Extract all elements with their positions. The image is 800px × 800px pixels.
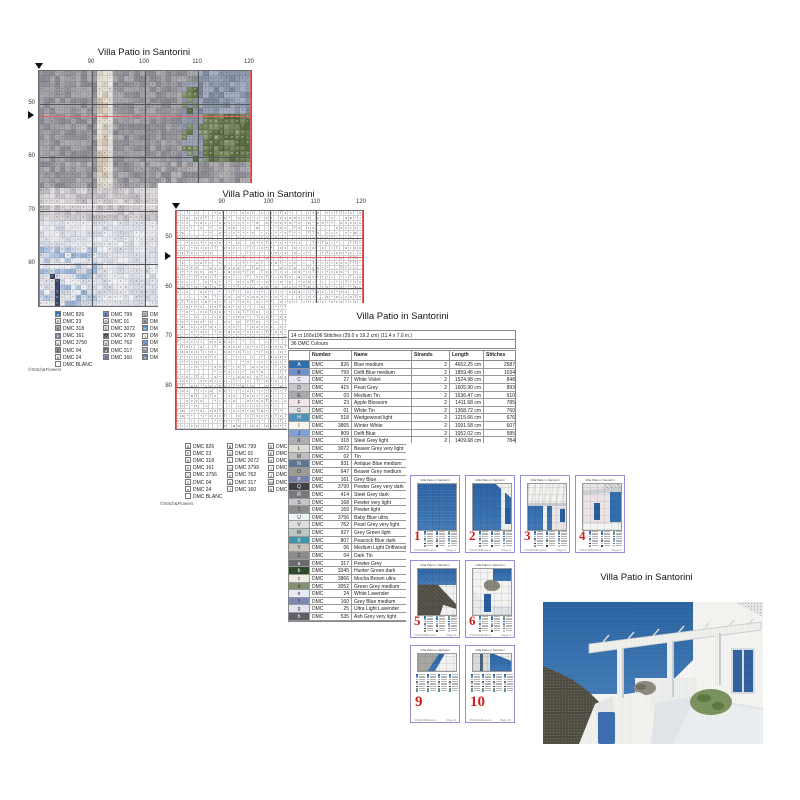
- number-cell: DMC04: [309, 552, 351, 559]
- page-number: 5: [414, 613, 421, 629]
- page-thumbnail-10[interactable]: Villa Patio in Santorini10©Stitch&Flower…: [465, 645, 515, 723]
- stitches-cell: 676: [483, 414, 517, 421]
- colour-count-box: 36 DMC Colours: [288, 339, 516, 349]
- legend-label: DMC 04: [63, 348, 81, 354]
- thumbnail-watermark: ©Stitch&Flowers: [414, 548, 436, 552]
- legend-swatch: e: [55, 354, 61, 360]
- legend-label: DMC BLANC: [63, 362, 92, 368]
- length-cell: 1411.68 cm: [449, 399, 483, 406]
- thumbnail-title: Villa Patio in Santorini: [576, 478, 624, 482]
- legend-swatch: F: [55, 318, 61, 324]
- thumbnail-watermark: ©Stitch&Flowers: [579, 548, 601, 552]
- legend-swatch: Z: [185, 479, 191, 485]
- symbol-cell: W: [289, 529, 309, 536]
- legend-label: DMC 161: [63, 333, 84, 339]
- name-cell: Steel Grey light: [351, 437, 411, 444]
- thumbnail-chart-image: [417, 568, 457, 616]
- name-cell: Grey Blue medium: [351, 598, 411, 605]
- page-thumbnail-4[interactable]: Villa Patio in Santorini4©Stitch&Flowers…: [575, 475, 625, 553]
- name-cell: Mocha Brown ultra: [351, 575, 411, 582]
- legend-swatch: P: [55, 333, 61, 339]
- number-cell: DMC318: [309, 437, 351, 444]
- number-cell: DMC3866: [309, 575, 351, 582]
- symbol-cell: J: [289, 430, 309, 437]
- page-thumbnail-1[interactable]: Villa Patio in Santorini1©Stitch&Flowers…: [410, 475, 460, 553]
- thumbnail-page-label: Page 9: [446, 718, 456, 722]
- name-cell: Tin: [351, 453, 411, 460]
- number-cell: DMC927: [309, 529, 351, 536]
- page-number: 9: [415, 694, 423, 711]
- table-header-cell: Strands: [411, 351, 449, 360]
- symbol-cell: A: [289, 361, 309, 368]
- number-cell: DMC24: [309, 590, 351, 597]
- page-thumbnail-5[interactable]: Villa Patio in Santorini5©Stitch&Flowers…: [410, 560, 460, 638]
- preview-image: [543, 602, 763, 744]
- number-cell: DMC3865: [309, 422, 351, 429]
- symbol-cell: X: [289, 537, 309, 544]
- symbol-cell: R: [289, 491, 309, 498]
- thumbnail-watermark: ©Stitch&Flowers: [469, 548, 491, 552]
- legend-label: DMC 318: [63, 326, 84, 332]
- legend-label: DMC 3072: [111, 326, 135, 332]
- thumbnail-page-label: Page 1: [446, 548, 456, 552]
- stitches-cell: 1034: [483, 369, 517, 376]
- legend-label: DMC: [276, 451, 287, 457]
- number-cell: DMC168: [309, 499, 351, 506]
- legend-label: DMC: [276, 444, 287, 450]
- legend-swatch: N: [268, 486, 274, 492]
- stitches-cell: 2587: [483, 361, 517, 368]
- name-cell: Delft Blue: [351, 430, 411, 437]
- strands-cell: 2: [411, 430, 449, 437]
- symbol-cell: f: [289, 598, 309, 605]
- legend-label: DMC 762: [111, 340, 132, 346]
- thumbnail-chart-image: [527, 483, 567, 531]
- thumbnail-watermark: ©Stitch&Flowers: [414, 718, 436, 722]
- table-header-cell: Stitches: [483, 351, 517, 360]
- symbol-cell: E: [289, 392, 309, 399]
- villa-scene: [543, 602, 763, 744]
- thumbnail-page-label: Page 6: [501, 633, 511, 637]
- legend-label: DMC 01: [111, 319, 129, 325]
- number-cell: DMC3052: [309, 583, 351, 590]
- table-row: HDMC518Wedgewood light21215.66 cm676: [289, 414, 515, 422]
- legend-label: DMC: [276, 472, 287, 478]
- page-thumbnail-9[interactable]: Villa Patio in Santorini9©Stitch&Flowers…: [410, 645, 460, 723]
- page-thumbnail-2[interactable]: Villa Patio in Santorini2©Stitch&Flowers…: [465, 475, 515, 553]
- length-cell: 1215.66 cm: [449, 414, 483, 421]
- number-cell: DMC931: [309, 460, 351, 467]
- page-number: 4: [579, 528, 586, 544]
- name-cell: Pearl Grey: [351, 384, 411, 391]
- name-cell: Delft Blue medium: [351, 369, 411, 376]
- name-cell: Baby Blue ultra: [351, 514, 411, 521]
- legend-swatch: U: [55, 340, 61, 346]
- legend-swatch: A: [55, 311, 61, 317]
- name-cell: Dark Tin: [351, 552, 411, 559]
- pattern-size-text: 14 ct 160x106 Stitches (29.0 x 19.2 cm) …: [291, 333, 412, 339]
- preview-title: Villa Patio in Santorini: [518, 572, 775, 583]
- length-cell: 1859.46 cm: [449, 369, 483, 376]
- table-row: GDMC01White Tin21368.72 cm760: [289, 407, 515, 415]
- name-cell: Green Grey medium: [351, 583, 411, 590]
- legend-swatch: V: [103, 340, 109, 346]
- legend-label: DMC 3756: [193, 472, 217, 478]
- legend-swatch: E: [268, 450, 274, 456]
- stitches-cell: 760: [483, 407, 517, 414]
- number-cell: DMC826: [309, 361, 351, 368]
- legend-swatch: L: [227, 457, 233, 463]
- thumbnail-title: Villa Patio in Santorini: [521, 478, 569, 482]
- thumbnail-page-label: Page 2: [501, 548, 511, 552]
- legend-label: DMC BLANC: [193, 494, 222, 500]
- legend-label: DMC 3756: [63, 340, 87, 346]
- legend-label: DMC 826: [193, 444, 214, 450]
- symbol-cell: D: [289, 384, 309, 391]
- symbol-cell: M: [289, 453, 309, 460]
- legend-label: DMC 318: [193, 458, 214, 464]
- number-cell: DMC06: [309, 544, 351, 551]
- symbol-cell: h: [289, 613, 309, 620]
- stitches-cell: 585: [483, 430, 517, 437]
- legend-swatch: ·: [185, 493, 191, 499]
- name-cell: Pewter very light: [351, 499, 411, 506]
- symbol-cell: Z: [289, 552, 309, 559]
- symbol-cell: G: [289, 407, 309, 414]
- strands-cell: 2: [411, 422, 449, 429]
- symbol-cell: I: [289, 422, 309, 429]
- thumbnail-watermark: ©Stitch&Flowers: [469, 633, 491, 637]
- legend-swatch: K: [55, 325, 61, 331]
- symbol-cell: a: [289, 560, 309, 567]
- name-cell: Pewter light: [351, 506, 411, 513]
- name-cell: Antique Blue medium: [351, 460, 411, 467]
- legend-swatch: Q: [103, 333, 109, 339]
- name-cell: Apple Blossom: [351, 399, 411, 406]
- table-row: DDMC415Pearl Grey21605.90 cm893: [289, 384, 515, 392]
- strands-cell: 2: [411, 369, 449, 376]
- legend-label: DMC 24: [63, 355, 81, 361]
- legend-swatch: a: [103, 347, 109, 353]
- legend-swatch: L: [103, 325, 109, 331]
- number-cell: DMC23: [309, 399, 351, 406]
- legend-label: DMC 799: [235, 444, 256, 450]
- legend-swatch: D: [268, 443, 274, 449]
- name-cell: Medium Tin: [351, 392, 411, 399]
- length-cell: 1368.72 cm: [449, 407, 483, 414]
- name-cell: Winter White: [351, 422, 411, 429]
- name-cell: Wedgewood light: [351, 414, 411, 421]
- thumbnail-watermark: ©Stitch&Flowers: [524, 548, 546, 552]
- legend-swatch: a: [227, 479, 233, 485]
- legend-label: DMC 826: [63, 312, 84, 318]
- legend-swatch: M: [142, 347, 148, 353]
- number-cell: DMC27: [309, 376, 351, 383]
- legend-swatch: K: [185, 457, 191, 463]
- legend-swatch: f: [227, 486, 233, 492]
- legend-swatch: G: [227, 450, 233, 456]
- name-cell: White Lavender: [351, 590, 411, 597]
- symbol-cell: C: [289, 376, 309, 383]
- table-header-cell: Name: [351, 351, 411, 360]
- name-cell: Medium Light Driftwood: [351, 544, 411, 551]
- name-cell: White Tin: [351, 407, 411, 414]
- name-cell: Peacock Blue dark: [351, 537, 411, 544]
- symbol-cell: T: [289, 506, 309, 513]
- legend-swatch: N: [142, 354, 148, 360]
- name-cell: Beaver Grey medium: [351, 468, 411, 475]
- legend-swatch: M: [268, 479, 274, 485]
- legend-swatch: J: [142, 340, 148, 346]
- symbol-cell: P: [289, 476, 309, 483]
- thumbnail-title: Villa Patio in Santorini: [411, 648, 459, 652]
- chart1-watermark: ©Stitch&Flowers: [28, 367, 61, 372]
- legend-label: DMC 799: [111, 312, 132, 318]
- legend-label: DMC 762: [235, 472, 256, 478]
- number-cell: DMC647: [309, 468, 351, 475]
- thumbnail-page-label: Page 5: [446, 633, 456, 637]
- name-cell: Pewter Grey: [351, 560, 411, 567]
- legend-label: DMC 23: [193, 451, 211, 457]
- legend-swatch: D: [142, 311, 148, 317]
- strands-cell: 2: [411, 392, 449, 399]
- legend-swatch: J: [268, 472, 274, 478]
- legend-swatch: H: [268, 457, 274, 463]
- thumbnail-title: Villa Patio in Santorini: [411, 478, 459, 482]
- stitches-cell: 785: [483, 399, 517, 406]
- page-thumbnail-6[interactable]: Villa Patio in Santorini6©Stitch&Flowers…: [465, 560, 515, 638]
- legend-swatch: A: [185, 443, 191, 449]
- name-cell: Pearl Grey very light: [351, 521, 411, 528]
- legend-label: DMC: [276, 458, 287, 464]
- name-cell: Ultra Light Lavender: [351, 605, 411, 612]
- symbol-cell: O: [289, 468, 309, 475]
- thumbnail-chart-image: [417, 483, 457, 531]
- symbol-cell: b: [289, 567, 309, 574]
- stitches-cell: 848: [483, 376, 517, 383]
- strands-cell: 2: [411, 407, 449, 414]
- table-row: ADMC826Blue medium24652.25 cm2587: [289, 361, 515, 369]
- legend-label: DMC 317: [111, 348, 132, 354]
- table-row: BDMC799Delft Blue medium21859.46 cm1034: [289, 369, 515, 377]
- name-cell: Grey Blue: [351, 476, 411, 483]
- legend-label: DMC 3799: [111, 333, 135, 339]
- legend-label: DMC 24: [193, 487, 211, 493]
- strands-cell: 2: [411, 399, 449, 406]
- stitches-cell: 910: [483, 392, 517, 399]
- legend-swatch: f: [103, 354, 109, 360]
- legend-swatch: H: [142, 325, 148, 331]
- stitches-cell: 893: [483, 384, 517, 391]
- number-cell: DMC01: [309, 407, 351, 414]
- table-row: CDMC27White Violet21524.98 cm848: [289, 376, 515, 384]
- symbol-cell: H: [289, 414, 309, 421]
- legend-label: DMC: [276, 465, 287, 471]
- thumbnail-watermark: ©Stitch&Flowers: [414, 633, 436, 637]
- page-number: 6: [469, 613, 476, 629]
- thumbnail-chart-image: [472, 653, 512, 672]
- number-cell: DMC762: [309, 521, 351, 528]
- name-cell: White Violet: [351, 376, 411, 383]
- number-cell: DMC414: [309, 491, 351, 498]
- number-cell: DMC03: [309, 392, 351, 399]
- table-title: Villa Patio in Santorini: [288, 311, 517, 322]
- legend-swatch: P: [185, 465, 191, 471]
- page-number: 2: [469, 528, 476, 544]
- page-number: 3: [524, 528, 531, 544]
- legend-label: DMC 160: [235, 487, 256, 493]
- thumbnail-chart-image: [417, 653, 457, 672]
- symbol-cell: L: [289, 445, 309, 452]
- symbol-cell: e: [289, 590, 309, 597]
- legend-label: DMC 160: [111, 355, 132, 361]
- symbol-cell: S: [289, 499, 309, 506]
- chart2-watermark: ©Stitch&Flowers: [160, 501, 193, 506]
- strands-cell: 2: [411, 414, 449, 421]
- legend-swatch: B: [103, 311, 109, 317]
- length-cell: 1636.47 cm: [449, 392, 483, 399]
- number-cell: DMC809: [309, 430, 351, 437]
- legend-label: DMC 3799: [235, 465, 259, 471]
- name-cell: Beaver Grey very light: [351, 445, 411, 452]
- legend-swatch: G: [103, 318, 109, 324]
- preview-image-window: Villa Patio in Santorini: [518, 562, 775, 758]
- name-cell: Blue medium: [351, 361, 411, 368]
- legend-swatch: V: [227, 472, 233, 478]
- length-cell: 1091.58 cm: [449, 422, 483, 429]
- symbol-cell: N: [289, 460, 309, 467]
- number-cell: DMC807: [309, 537, 351, 544]
- strands-cell: 2: [411, 376, 449, 383]
- legend-swatch: E: [142, 318, 148, 324]
- number-cell: DMC02: [309, 453, 351, 460]
- symbol-cell: g: [289, 605, 309, 612]
- symbol-cell: F: [289, 399, 309, 406]
- legend-label: DMC 01: [235, 451, 253, 457]
- number-cell: DMC3756: [309, 514, 351, 521]
- name-cell: Pewter Grey very dark: [351, 483, 411, 490]
- legend-swatch: e: [185, 486, 191, 492]
- legend-label: DMC: [276, 487, 287, 493]
- strands-cell: 2: [411, 384, 449, 391]
- name-cell: Grey Green light: [351, 529, 411, 536]
- legend-label: DMC: [276, 480, 287, 486]
- thumbnail-chart-image: [472, 483, 512, 531]
- thumbnail-title: Villa Patio in Santorini: [411, 563, 459, 567]
- legend-swatch: Q: [227, 465, 233, 471]
- legend-label: DMC 161: [193, 465, 214, 471]
- symbol-cell: U: [289, 514, 309, 521]
- length-cell: 1524.98 cm: [449, 376, 483, 383]
- number-cell: DMC160: [309, 598, 351, 605]
- symbol-cell: d: [289, 583, 309, 590]
- number-cell: DMC3345: [309, 567, 351, 574]
- legend-swatch: I: [268, 465, 274, 471]
- colour-count-text: 36 DMC Colours: [291, 341, 328, 347]
- thumbnail-page-label: Page 3: [556, 548, 566, 552]
- table-header-row: NumberNameStrandsLengthStitches: [288, 350, 516, 361]
- symbol-cell: K: [289, 437, 309, 444]
- legend-label: DMC 04: [193, 480, 211, 486]
- thumbnail-chart-image: [472, 568, 512, 616]
- legend-swatch: F: [185, 450, 191, 456]
- legend-swatch: B: [227, 443, 233, 449]
- number-cell: DMC535: [309, 613, 351, 620]
- thumbnail-title: Villa Patio in Santorini: [466, 478, 514, 482]
- table-row: EDMC03Medium Tin21636.47 cm910: [289, 392, 515, 400]
- table-header-cell: Number: [309, 351, 351, 360]
- length-cell: 1052.02 cm: [449, 430, 483, 437]
- number-cell: DMC161: [309, 476, 351, 483]
- length-cell: 1605.90 cm: [449, 384, 483, 391]
- number-cell: DMC518: [309, 414, 351, 421]
- name-cell: Hunter Green dark: [351, 567, 411, 574]
- table-header-cell: Length: [449, 351, 483, 360]
- number-cell: DMC25: [309, 605, 351, 612]
- length-cell: 4652.25 cm: [449, 361, 483, 368]
- page-thumbnail-3[interactable]: Villa Patio in Santorini3©Stitch&Flowers…: [520, 475, 570, 553]
- thumbnail-title: Villa Patio in Santorini: [466, 648, 514, 652]
- thumbnail-watermark: ©Stitch&Flowers: [469, 718, 491, 722]
- number-cell: DMC3799: [309, 483, 351, 490]
- symbol-cell: c: [289, 575, 309, 582]
- symbol-cell: Y: [289, 544, 309, 551]
- thumbnail-page-label: Page 4: [611, 548, 621, 552]
- page-number: 1: [414, 528, 421, 544]
- table-row: IDMC3865Winter White21091.58 cm607: [289, 422, 515, 430]
- number-cell: DMC317: [309, 560, 351, 567]
- thumbnail-chart-image: [582, 483, 622, 531]
- legend-label: DMC 23: [63, 319, 81, 325]
- symbol-cell: Q: [289, 483, 309, 490]
- thumbnail-title: Villa Patio in Santorini: [466, 563, 514, 567]
- legend-swatch: U: [185, 472, 191, 478]
- number-cell: DMC799: [309, 369, 351, 376]
- number-cell: DMC169: [309, 506, 351, 513]
- number-cell: DMC415: [309, 384, 351, 391]
- name-cell: Ash Grey very light: [351, 613, 411, 620]
- legend-label: DMC 317: [235, 480, 256, 486]
- thumbnail-page-label: Page 10: [500, 718, 511, 722]
- page-number: 10: [470, 694, 485, 711]
- number-cell: DMC3072: [309, 445, 351, 452]
- table-row: JDMC809Delft Blue21052.02 cm585: [289, 430, 515, 438]
- name-cell: Steel Grey dark: [351, 491, 411, 498]
- strands-cell: 2: [411, 361, 449, 368]
- symbol-cell: B: [289, 369, 309, 376]
- stitches-cell: 607: [483, 422, 517, 429]
- legend-swatch: Z: [55, 347, 61, 353]
- symbol-cell: V: [289, 521, 309, 528]
- legend-label: DMC 3072: [235, 458, 259, 464]
- legend-swatch: I: [142, 333, 148, 339]
- table-row: FDMC23Apple Blossom21411.68 cm785: [289, 399, 515, 407]
